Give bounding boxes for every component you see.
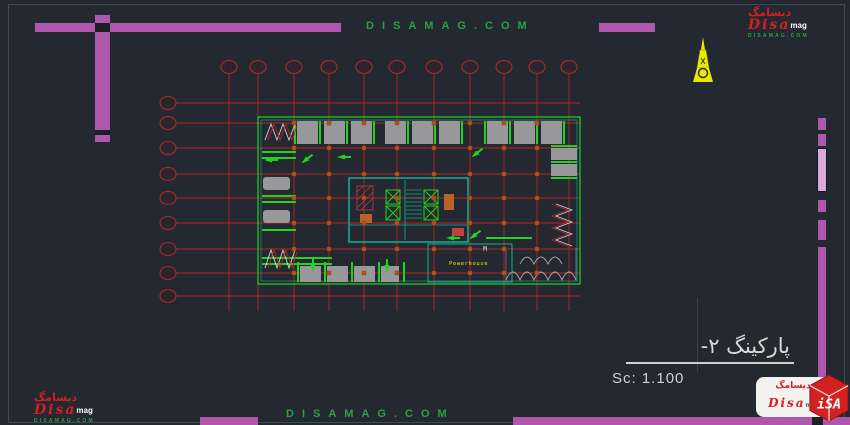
structural-column-marker	[432, 121, 436, 125]
structural-column-marker	[362, 172, 366, 176]
structural-column-marker	[292, 172, 296, 176]
structural-column-marker	[468, 146, 472, 150]
grid-column-label: I	[502, 64, 506, 72]
structural-column-marker	[535, 172, 539, 176]
structural-column-marker	[362, 247, 366, 251]
grid-column-label: A	[227, 64, 231, 72]
grid-column-label: K	[567, 64, 571, 72]
structural-column-marker	[395, 271, 399, 275]
brand-name: Disa	[768, 396, 806, 410]
core-stairs	[406, 190, 422, 218]
structural-column-marker	[432, 221, 436, 225]
structural-column-marker	[432, 271, 436, 275]
grid-column-label: J	[535, 64, 539, 72]
structural-column-marker	[535, 221, 539, 225]
structural-column-marker	[395, 172, 399, 176]
structural-column-marker	[327, 121, 331, 125]
structural-column-marker	[432, 196, 436, 200]
parking-stalls-bottom	[262, 258, 404, 282]
structural-column-marker	[327, 271, 331, 275]
structural-column-marker	[502, 196, 506, 200]
grid-row-label: 7	[166, 246, 170, 254]
structural-column-marker	[362, 221, 366, 225]
grid-column-label: E	[362, 64, 366, 72]
brand-cube-text: iSA	[817, 397, 841, 413]
grid-row-label: 3	[166, 145, 170, 153]
structural-column-marker	[468, 121, 472, 125]
structural-column-marker	[327, 146, 331, 150]
structural-column-marker	[432, 247, 436, 251]
parking-stalls-right	[551, 146, 577, 178]
structural-column-marker	[362, 146, 366, 150]
brand-cube-icon: iSA	[808, 374, 850, 422]
brand-logo-bottom-right: دیسامگ Disamag iSA	[756, 374, 850, 420]
grid-row-label: 2	[166, 120, 170, 128]
structural-column-marker	[535, 271, 539, 275]
structural-column-marker	[292, 121, 296, 125]
drawing-title: پارکینگ ۲-	[612, 334, 794, 358]
structural-column-marker	[468, 271, 472, 275]
grid-row-label: 1	[166, 100, 170, 108]
cad-drawing-canvas: DISAMAG.COM DISAMAG.COM دیسامگ Disamag D…	[0, 0, 850, 425]
structural-column-marker	[502, 221, 506, 225]
grid-row-label: 4	[166, 171, 170, 179]
structural-column-marker	[362, 121, 366, 125]
structural-column-marker	[292, 221, 296, 225]
structural-column-marker	[327, 221, 331, 225]
parking-stalls-top	[295, 121, 564, 144]
grid-column-label: F	[395, 64, 399, 72]
structural-column-marker	[327, 172, 331, 176]
structural-column-marker	[362, 196, 366, 200]
grid-column-label: D	[327, 64, 331, 72]
structural-column-marker	[327, 196, 331, 200]
structural-column-marker	[468, 247, 472, 251]
service-core	[349, 178, 468, 242]
core-equipment	[452, 228, 464, 236]
structural-column-marker	[432, 146, 436, 150]
powerhouse-label: Powerhouse	[449, 261, 488, 267]
structural-column-marker	[468, 172, 472, 176]
structural-column-marker	[535, 146, 539, 150]
grid-column-label: H	[468, 64, 472, 72]
elevator-shafts	[386, 190, 438, 220]
door-label: M	[483, 245, 487, 253]
structural-column-marker	[327, 247, 331, 251]
structural-column-marker	[292, 247, 296, 251]
grid-row-label: 9	[166, 293, 170, 301]
core-equipment	[444, 194, 454, 210]
structural-column-marker	[395, 121, 399, 125]
structural-column-marker	[395, 146, 399, 150]
structural-column-marker	[535, 247, 539, 251]
structural-column-marker	[502, 172, 506, 176]
grid-column-label: B	[256, 64, 260, 72]
structural-column-marker	[395, 247, 399, 251]
structural-column-marker	[502, 247, 506, 251]
ramp-curves	[506, 248, 576, 281]
structural-column-marker	[395, 221, 399, 225]
grid-row-label: 5	[166, 195, 170, 203]
structural-column-marker	[468, 221, 472, 225]
grid-column-label: G	[432, 64, 436, 72]
stair-hatch-top-left	[265, 124, 297, 140]
grid-column-label: C	[292, 64, 296, 72]
title-underline	[626, 362, 794, 364]
structural-column-marker	[292, 196, 296, 200]
structural-column-marker	[502, 271, 506, 275]
structural-column-marker	[502, 146, 506, 150]
structural-column-marker	[468, 196, 472, 200]
parking-stalls-left	[262, 152, 296, 230]
powerhouse-room: M Powerhouse	[428, 238, 532, 282]
grid-row-label: 8	[166, 270, 170, 278]
structural-column-marker	[535, 196, 539, 200]
structural-column-marker	[432, 172, 436, 176]
structural-column-marker	[502, 121, 506, 125]
structural-column-marker	[362, 271, 366, 275]
structural-column-marker	[292, 146, 296, 150]
grid-row-label: 6	[166, 220, 170, 228]
structural-column-marker	[395, 196, 399, 200]
structural-column-marker	[535, 121, 539, 125]
structural-column-marker	[292, 271, 296, 275]
